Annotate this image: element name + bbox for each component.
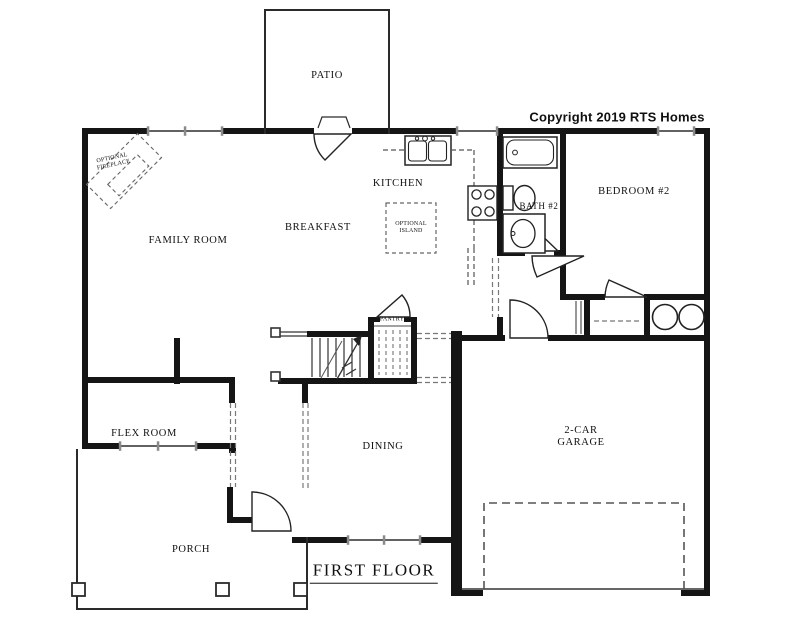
laundry-appliances [653, 305, 705, 330]
pantry-door [377, 295, 410, 317]
walls [82, 128, 710, 596]
porch-column [216, 583, 229, 596]
room-label-bath2: BATH #2 [520, 201, 559, 211]
room-label-family-room: FAMILY ROOM [149, 235, 228, 247]
porch-column [294, 583, 307, 596]
room-label-dining: DINING [363, 441, 404, 453]
plan-title: FIRST FLOOR [310, 561, 438, 584]
front-door [252, 492, 291, 531]
kitchen-fixtures [383, 136, 497, 285]
counter-edge [383, 150, 474, 285]
room-label-garage: 2-CAR GARAGE [549, 425, 613, 449]
railing-post [271, 372, 280, 381]
garage-door [462, 503, 704, 589]
room-label-pantry: PANTRY [380, 317, 404, 324]
room-label-breakfast: BREAKFAST [285, 222, 351, 234]
pantry-shelves [374, 326, 411, 375]
bath-fixtures [503, 137, 557, 253]
room-label-kitchen: KITCHEN [373, 178, 423, 190]
bedroom-door [605, 280, 647, 297]
floor-plan: Copyright 2019 RTS Homes PATIO FAMILY RO… [0, 0, 800, 618]
hall-door [532, 256, 584, 277]
toilet [503, 186, 513, 210]
railing-post [271, 328, 280, 337]
room-label-porch: PORCH [172, 544, 210, 556]
washer [653, 305, 678, 330]
garage-entry-door [510, 300, 548, 338]
annotation-optional-island: OPTIONAL ISLAND [387, 221, 435, 235]
room-label-patio: PATIO [311, 70, 343, 82]
room-label-bedroom2: BEDROOM #2 [598, 186, 670, 198]
copyright-text: Copyright 2019 RTS Homes [529, 111, 704, 126]
floorplan-linework [0, 0, 800, 618]
room-label-flex-room: FLEX ROOM [111, 428, 177, 440]
patio-door [314, 134, 351, 160]
dryer [679, 305, 704, 330]
porch-column [72, 583, 85, 596]
tub [503, 137, 557, 168]
